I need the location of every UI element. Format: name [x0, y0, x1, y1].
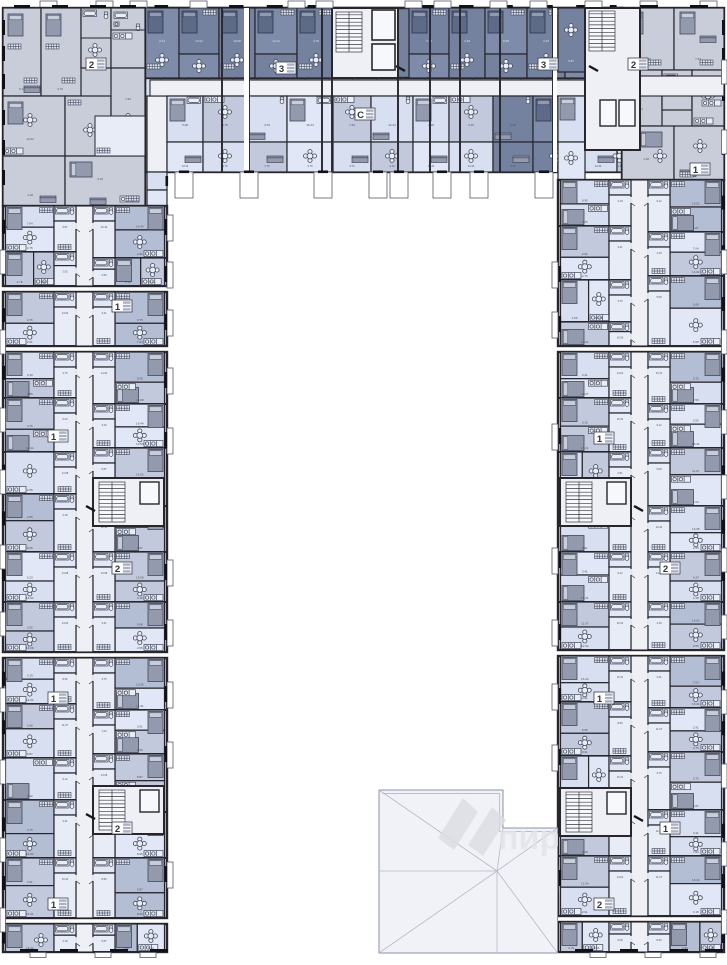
svg-text:4.18: 4.18 — [27, 193, 33, 197]
svg-text:3: 3 — [279, 64, 284, 75]
svg-text:4.18: 4.18 — [137, 596, 143, 600]
svg-text:2.55: 2.55 — [693, 398, 699, 402]
svg-text:4.18: 4.18 — [464, 39, 470, 43]
svg-text:5.87: 5.87 — [137, 775, 143, 779]
svg-text:2.55: 2.55 — [101, 273, 107, 277]
svg-text:2.55: 2.55 — [137, 646, 143, 650]
svg-text:2.91: 2.91 — [137, 252, 143, 256]
svg-text:2.91: 2.91 — [137, 725, 143, 729]
svg-text:9.12: 9.12 — [27, 794, 33, 798]
svg-text:2: 2 — [115, 564, 120, 575]
svg-text:2: 2 — [597, 900, 602, 911]
svg-text:14.62: 14.62 — [581, 340, 589, 344]
svg-text:3.19: 3.19 — [468, 123, 474, 127]
svg-text:4.76: 4.76 — [349, 164, 355, 168]
svg-text:5.08: 5.08 — [182, 123, 188, 127]
svg-text:3.75: 3.75 — [264, 164, 270, 168]
svg-text:1: 1 — [597, 434, 603, 445]
svg-text:14.62: 14.62 — [26, 596, 34, 600]
svg-text:4.76: 4.76 — [27, 318, 33, 322]
svg-text:2.55: 2.55 — [693, 419, 699, 423]
svg-text:15.31: 15.31 — [136, 704, 144, 708]
svg-text:4.18: 4.18 — [693, 910, 699, 914]
svg-text:4.76: 4.76 — [582, 274, 588, 278]
svg-text:7.64: 7.64 — [695, 57, 701, 61]
svg-text:1: 1 — [663, 824, 669, 835]
svg-text:12.34: 12.34 — [468, 164, 475, 168]
svg-text:6.23: 6.23 — [693, 576, 699, 580]
svg-text:3.41: 3.41 — [101, 621, 107, 625]
svg-text:3.75: 3.75 — [656, 771, 662, 775]
svg-text:1: 1 — [115, 302, 121, 313]
svg-text:11.07: 11.07 — [581, 392, 589, 396]
svg-text:3.75: 3.75 — [693, 777, 699, 781]
svg-text:2.55: 2.55 — [693, 644, 699, 648]
svg-text:14.62: 14.62 — [692, 270, 700, 274]
svg-text:4.18: 4.18 — [62, 513, 68, 517]
svg-text:5.08: 5.08 — [656, 295, 662, 299]
svg-text:12.34: 12.34 — [595, 164, 602, 168]
svg-text:4.18: 4.18 — [693, 596, 699, 600]
svg-text:4.76: 4.76 — [264, 123, 270, 127]
svg-text:8.95: 8.95 — [27, 546, 33, 550]
svg-text:5.87: 5.87 — [693, 804, 699, 808]
svg-text:6.23: 6.23 — [568, 946, 574, 950]
svg-text:16.44: 16.44 — [581, 677, 589, 681]
svg-text:5.08: 5.08 — [693, 340, 699, 344]
svg-text:6.23: 6.23 — [27, 576, 33, 580]
svg-text:3.41: 3.41 — [693, 831, 699, 835]
svg-text:8.95: 8.95 — [582, 198, 588, 202]
svg-text:3.41: 3.41 — [159, 39, 165, 43]
svg-text:4.76: 4.76 — [222, 164, 228, 168]
svg-text:1: 1 — [51, 900, 57, 911]
svg-text:4.18: 4.18 — [643, 157, 649, 161]
svg-text:3.75: 3.75 — [307, 164, 313, 168]
svg-text:3.75: 3.75 — [313, 39, 319, 43]
svg-text:5.08: 5.08 — [656, 467, 662, 471]
svg-text:14.62: 14.62 — [62, 311, 69, 315]
svg-text:14.62: 14.62 — [26, 137, 34, 141]
svg-text:8.95: 8.95 — [503, 39, 509, 43]
svg-text:3.75: 3.75 — [582, 220, 588, 224]
svg-text:2.55: 2.55 — [27, 488, 33, 492]
svg-text:8.95: 8.95 — [137, 912, 143, 916]
svg-text:1: 1 — [597, 694, 603, 705]
svg-text:2.55: 2.55 — [27, 392, 33, 396]
svg-text:7.64: 7.64 — [693, 681, 699, 685]
svg-text:3.19: 3.19 — [97, 177, 103, 181]
svg-text:2.55: 2.55 — [693, 546, 699, 550]
svg-text:5.87: 5.87 — [568, 59, 574, 63]
svg-text:3.41: 3.41 — [62, 819, 68, 823]
svg-text:16.44: 16.44 — [306, 123, 314, 127]
svg-text:15.31: 15.31 — [62, 877, 69, 881]
svg-text:11.07: 11.07 — [656, 875, 663, 879]
svg-text:7.64: 7.64 — [693, 500, 699, 504]
svg-text:2.91: 2.91 — [582, 696, 588, 700]
svg-text:4.18: 4.18 — [582, 850, 588, 854]
svg-text:11.07: 11.07 — [656, 727, 663, 731]
svg-text:13.08: 13.08 — [233, 39, 241, 43]
svg-text:5.87: 5.87 — [101, 467, 107, 471]
svg-text:2.91: 2.91 — [582, 252, 588, 256]
svg-text:10.56: 10.56 — [617, 336, 624, 340]
svg-text:13.08: 13.08 — [101, 571, 108, 575]
svg-text:5.87: 5.87 — [137, 546, 143, 550]
svg-text:9.12: 9.12 — [125, 280, 131, 284]
svg-text:8.95: 8.95 — [617, 721, 623, 725]
svg-text:16.44: 16.44 — [101, 225, 108, 229]
svg-text:14.62: 14.62 — [136, 473, 144, 477]
svg-text:2: 2 — [631, 60, 636, 71]
svg-text:3.19: 3.19 — [510, 123, 516, 127]
svg-text:14.62: 14.62 — [617, 875, 624, 879]
svg-text:2.55: 2.55 — [27, 626, 33, 630]
svg-text:5.87: 5.87 — [137, 887, 143, 891]
svg-text:12.34: 12.34 — [26, 446, 34, 450]
svg-text:12.34: 12.34 — [388, 123, 396, 127]
svg-text:C: C — [357, 110, 364, 121]
svg-text:1: 1 — [51, 694, 57, 705]
svg-text:3.41: 3.41 — [582, 750, 588, 754]
svg-text:11.07: 11.07 — [581, 622, 589, 626]
svg-text:6.23: 6.23 — [62, 417, 68, 421]
svg-text:15.31: 15.31 — [26, 912, 34, 916]
svg-text:7.64: 7.64 — [349, 123, 355, 127]
svg-text:4.18: 4.18 — [656, 621, 662, 625]
svg-text:9.12: 9.12 — [62, 777, 68, 781]
svg-text:1: 1 — [51, 432, 57, 443]
svg-text:3.75: 3.75 — [137, 318, 143, 322]
svg-text:2.91: 2.91 — [617, 471, 623, 475]
svg-text:15.31: 15.31 — [617, 775, 624, 779]
svg-text:15.31: 15.31 — [581, 596, 589, 600]
svg-text:16.44: 16.44 — [656, 525, 663, 529]
svg-text:2.55: 2.55 — [572, 316, 578, 320]
svg-text:2.91: 2.91 — [27, 880, 33, 884]
svg-text:8.95: 8.95 — [137, 377, 143, 381]
svg-text:1: 1 — [693, 165, 699, 176]
svg-text:9.12: 9.12 — [656, 199, 662, 203]
svg-text:2.91: 2.91 — [582, 546, 588, 550]
svg-text:15.31: 15.31 — [656, 371, 663, 375]
svg-text:5.87: 5.87 — [62, 225, 68, 229]
svg-text:7.64: 7.64 — [693, 247, 699, 251]
svg-text:13.08: 13.08 — [136, 398, 144, 402]
svg-text:15.31: 15.31 — [617, 621, 624, 625]
svg-text:5.08: 5.08 — [27, 723, 33, 727]
svg-text:14.62: 14.62 — [101, 371, 108, 375]
svg-text:7.64: 7.64 — [101, 729, 107, 733]
svg-text:3.19: 3.19 — [582, 421, 588, 425]
svg-text:14.62: 14.62 — [26, 698, 34, 702]
svg-text:14.62: 14.62 — [617, 371, 624, 375]
svg-text:7.64: 7.64 — [693, 850, 699, 854]
svg-text:2: 2 — [115, 824, 120, 835]
svg-text:8.95: 8.95 — [62, 677, 68, 681]
svg-text:3.41: 3.41 — [617, 245, 623, 249]
svg-text:5.08: 5.08 — [617, 938, 623, 942]
svg-text:15.31: 15.31 — [617, 417, 624, 421]
svg-text:3.75: 3.75 — [101, 677, 107, 681]
svg-text:3.19: 3.19 — [101, 423, 107, 427]
svg-text:16.44: 16.44 — [428, 164, 435, 168]
svg-text:13.08: 13.08 — [101, 773, 108, 777]
svg-text:12.34: 12.34 — [581, 882, 589, 886]
svg-text:3.41: 3.41 — [582, 570, 588, 574]
svg-text:8.95: 8.95 — [656, 938, 662, 942]
svg-text:10.56: 10.56 — [136, 683, 144, 687]
svg-text:9.12: 9.12 — [617, 571, 623, 575]
svg-text:2: 2 — [663, 564, 668, 575]
svg-text:10.56: 10.56 — [136, 442, 144, 446]
svg-text:8.95: 8.95 — [582, 728, 588, 732]
svg-text:15.31: 15.31 — [692, 702, 700, 706]
svg-text:15.31: 15.31 — [617, 675, 624, 679]
svg-text:4.18: 4.18 — [617, 199, 623, 203]
svg-text:3.41: 3.41 — [582, 373, 588, 377]
svg-text:3.75: 3.75 — [222, 123, 228, 127]
svg-text:3.41: 3.41 — [101, 311, 107, 315]
svg-text:4.76: 4.76 — [17, 280, 23, 284]
svg-text:5.87: 5.87 — [693, 226, 699, 230]
svg-text:9.12: 9.12 — [656, 423, 662, 427]
svg-text:3.75: 3.75 — [27, 246, 33, 250]
svg-text:3.19: 3.19 — [27, 373, 33, 377]
svg-text:12.34: 12.34 — [182, 164, 189, 168]
svg-text:14.62: 14.62 — [692, 619, 700, 623]
svg-text:2.55: 2.55 — [62, 270, 68, 274]
svg-text:12.34: 12.34 — [581, 644, 589, 648]
svg-text:13.08: 13.08 — [62, 571, 69, 575]
svg-text:3.41: 3.41 — [41, 280, 47, 284]
svg-text:11.07: 11.07 — [692, 469, 700, 473]
svg-text:14.62: 14.62 — [195, 39, 203, 43]
svg-text:13.08: 13.08 — [62, 471, 69, 475]
svg-text:4.76: 4.76 — [57, 87, 63, 91]
svg-text:3.75: 3.75 — [62, 371, 68, 375]
svg-text:3.75: 3.75 — [693, 377, 699, 381]
svg-text:4.76: 4.76 — [693, 746, 699, 750]
svg-text:3.75: 3.75 — [27, 424, 33, 428]
svg-text:5.08: 5.08 — [693, 303, 699, 307]
svg-text:3.75: 3.75 — [617, 299, 623, 303]
svg-text:7.64: 7.64 — [137, 340, 143, 344]
svg-text:11.07: 11.07 — [62, 723, 69, 727]
svg-text:4.18: 4.18 — [428, 123, 434, 127]
svg-text:4.18: 4.18 — [656, 251, 662, 255]
svg-text:3.19: 3.19 — [543, 39, 549, 43]
svg-text:16.44: 16.44 — [692, 878, 700, 882]
svg-text:5.87: 5.87 — [101, 939, 107, 943]
svg-text:2: 2 — [89, 60, 94, 71]
svg-text:8.95: 8.95 — [101, 877, 107, 881]
svg-text:15.31: 15.31 — [692, 442, 700, 446]
svg-text:2.91: 2.91 — [693, 725, 699, 729]
svg-text:5.87: 5.87 — [27, 752, 33, 756]
svg-text:15.31: 15.31 — [581, 446, 589, 450]
svg-text:3.41: 3.41 — [656, 675, 662, 679]
svg-text:4.18: 4.18 — [62, 939, 68, 943]
svg-text:5.08: 5.08 — [137, 623, 143, 627]
svg-text:13.08: 13.08 — [692, 527, 700, 531]
svg-text:14.62: 14.62 — [692, 202, 700, 206]
svg-text:3.19: 3.19 — [389, 164, 395, 168]
svg-text:7.64: 7.64 — [125, 97, 131, 101]
svg-text:16.44: 16.44 — [136, 224, 144, 228]
svg-text:3.41: 3.41 — [150, 280, 156, 284]
svg-text:16.44: 16.44 — [136, 421, 144, 425]
svg-text:8.95: 8.95 — [137, 748, 143, 752]
svg-text:12.34: 12.34 — [272, 39, 280, 43]
svg-text:13.08: 13.08 — [595, 316, 603, 320]
svg-text:3: 3 — [541, 60, 546, 71]
svg-text:2.55: 2.55 — [27, 515, 33, 519]
svg-text:14.62: 14.62 — [26, 852, 34, 856]
svg-text:14.62: 14.62 — [62, 621, 69, 625]
svg-text:3.75: 3.75 — [27, 828, 33, 832]
svg-text:3.19: 3.19 — [27, 674, 33, 678]
svg-text:2.91: 2.91 — [582, 910, 588, 914]
svg-text:13.08: 13.08 — [136, 576, 144, 580]
svg-text:7.64: 7.64 — [27, 222, 33, 226]
svg-text:15.31: 15.31 — [592, 946, 600, 950]
svg-text:8.95: 8.95 — [137, 852, 143, 856]
svg-text:2.91: 2.91 — [27, 340, 33, 344]
svg-text:13.08: 13.08 — [26, 646, 34, 650]
svg-text:3.19: 3.19 — [510, 164, 516, 168]
